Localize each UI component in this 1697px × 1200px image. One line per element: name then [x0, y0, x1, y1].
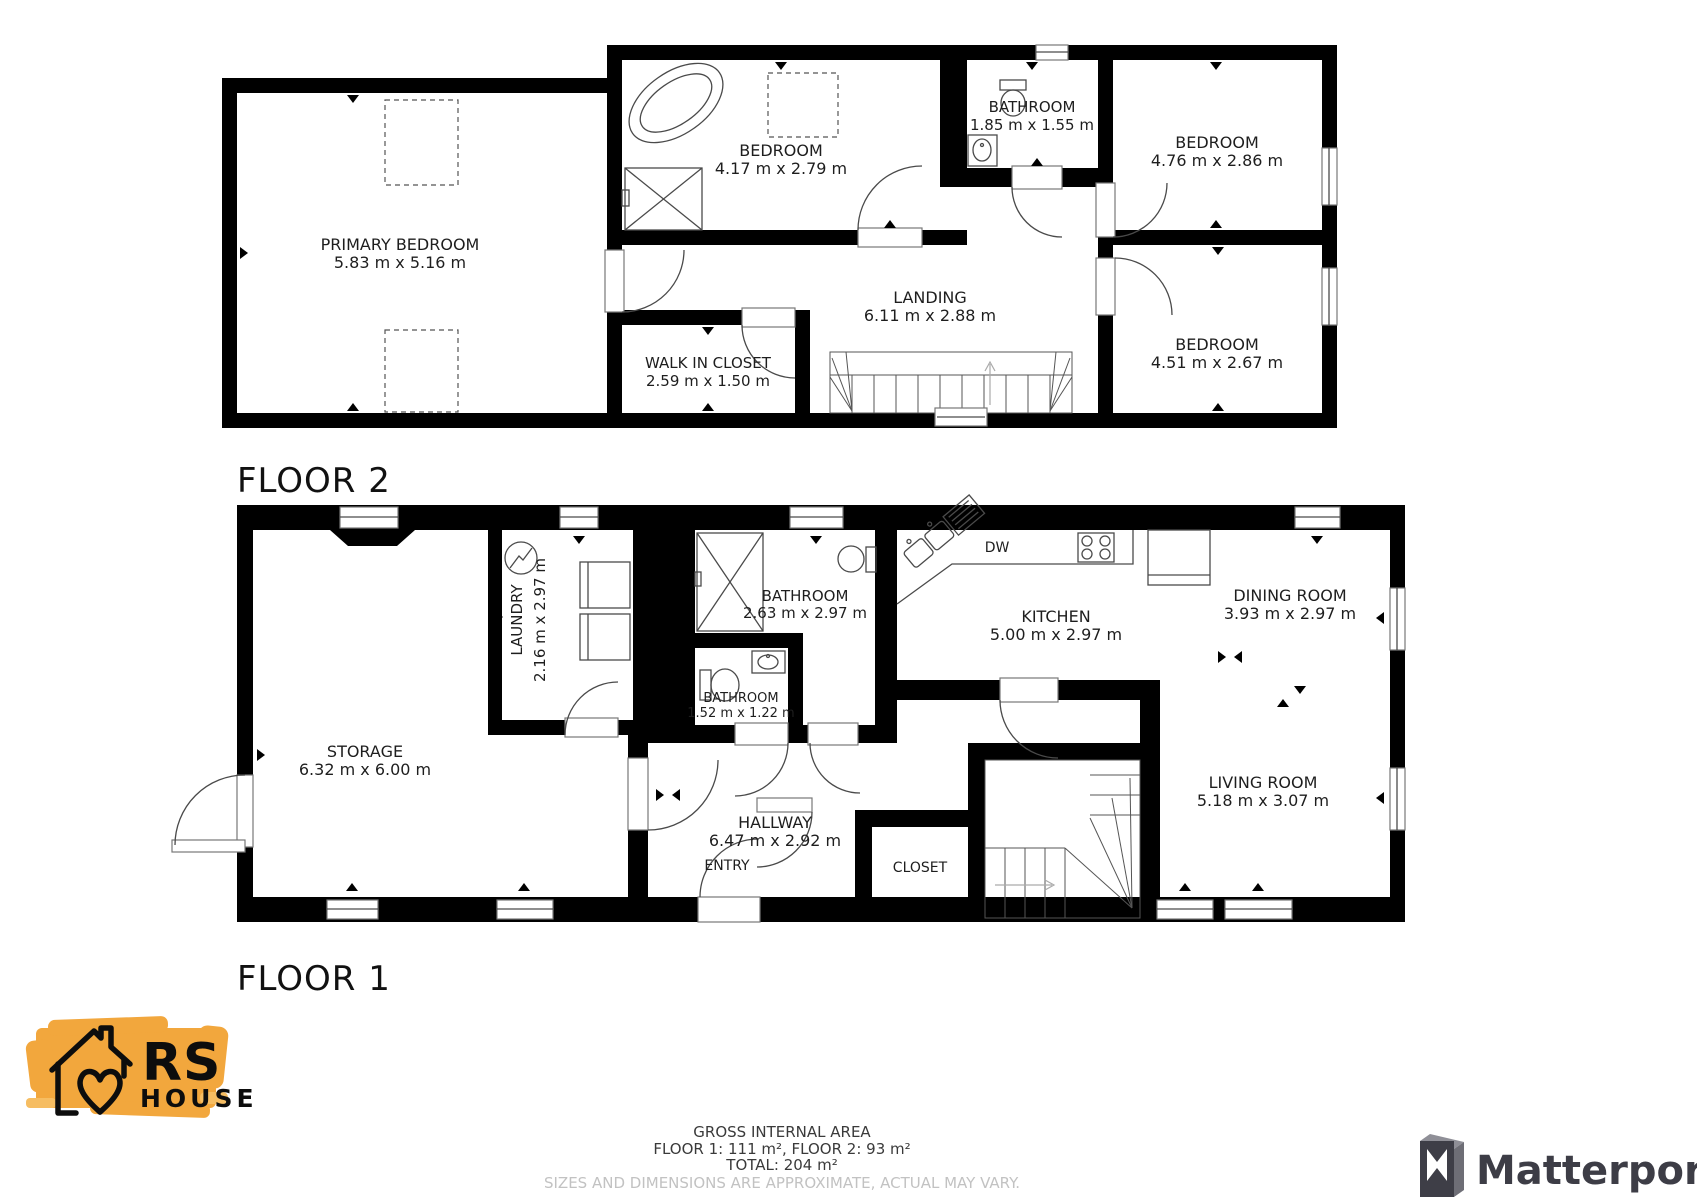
room-dims-primary-bedroom: 5.83 m x 5.16 m	[334, 253, 466, 272]
footer-gross-area: GROSS INTERNAL AREA	[693, 1123, 871, 1141]
floor1-title: FLOOR 1	[237, 959, 391, 999]
dishwasher-label: DW	[985, 540, 1010, 556]
room-dims-living-room: 5.18 m x 3.07 m	[1197, 791, 1329, 810]
room-label-hallway: HALLWAY	[738, 813, 812, 832]
room-label-living-room: LIVING ROOM	[1209, 773, 1318, 792]
kitchen-sink-icon	[899, 491, 985, 570]
room-label-closet: CLOSET	[893, 860, 948, 876]
room-label-primary-bedroom: PRIMARY BEDROOM	[321, 235, 480, 254]
door-arc	[1113, 183, 1167, 237]
floorplan-page: PRIMARY BEDROOM 5.83 m x 5.16 m BEDROOM …	[0, 0, 1697, 1200]
room-dims-landing: 6.11 m x 2.88 m	[864, 306, 996, 325]
room-dims-walk-in-closet: 2.59 m x 1.50 m	[646, 372, 770, 390]
fridge-icon	[1148, 530, 1210, 585]
room-label-walk-in-closet: WALK IN CLOSET	[645, 354, 772, 372]
room-label-bathroom-263: BATHROOM	[762, 587, 849, 605]
sink-icon	[752, 651, 785, 673]
room-label-laundry: LAUNDRY	[508, 583, 526, 655]
dryer-icon	[580, 614, 630, 660]
room-dims-bedroom-476: 4.76 m x 2.86 m	[1151, 151, 1283, 170]
room-label-landing: LANDING	[893, 288, 967, 307]
room-label-bedroom-476: BEDROOM	[1175, 133, 1259, 152]
floorplan-drawing: PRIMARY BEDROOM 5.83 m x 5.16 m BEDROOM …	[0, 0, 1697, 1200]
room-label-kitchen: KITCHEN	[1021, 607, 1090, 626]
room-label-entry: ENTRY	[704, 858, 750, 874]
matterport-m-icon	[1420, 1134, 1464, 1197]
room-label-bathroom-185: BATHROOM	[989, 98, 1076, 116]
room-dims-bedroom-417: 4.17 m x 2.79 m	[715, 159, 847, 178]
shower-icon	[622, 168, 702, 230]
floor2-plan: PRIMARY BEDROOM 5.83 m x 5.16 m BEDROOM …	[222, 45, 1337, 501]
matterport-wordmark: Matterport	[1476, 1148, 1697, 1194]
toilet-icon	[838, 546, 876, 572]
rs-house-logo: RS HOUSE	[25, 1016, 258, 1118]
room-label-bedroom-417: BEDROOM	[739, 141, 823, 160]
footer-total-area: TOTAL: 204 m²	[725, 1156, 837, 1174]
washer-icon	[580, 562, 630, 608]
room-dims-bedroom-451: 4.51 m x 2.67 m	[1151, 353, 1283, 372]
room-label-bedroom-451: BEDROOM	[1175, 335, 1259, 354]
room-dims-hallway: 6.47 m x 2.92 m	[709, 831, 841, 850]
room-label-bathroom-152: BATHROOM	[703, 691, 778, 706]
door-arc	[810, 743, 860, 793]
sink-icon	[968, 135, 997, 166]
floor1-walls	[237, 505, 1405, 922]
room-dims-bathroom-185: 1.85 m x 1.55 m	[970, 116, 1094, 134]
room-label-storage: STORAGE	[327, 742, 403, 761]
stairs-floor1	[985, 760, 1140, 918]
room-dims-kitchen: 5.00 m x 2.97 m	[990, 625, 1122, 644]
floor1-labels: STORAGE 6.32 m x 6.00 m LAUNDRY 2.16 m x…	[299, 540, 1356, 876]
rs-logo-subtext: HOUSE	[140, 1084, 258, 1113]
floor2-title: FLOOR 2	[237, 461, 391, 501]
door-arc	[622, 250, 684, 312]
room-dims-laundry: 2.16 m x 2.97 m	[531, 558, 549, 682]
bathtub-icon	[615, 47, 737, 159]
footer-disclaimer: SIZES AND DIMENSIONS ARE APPROXIMATE, AC…	[544, 1174, 1020, 1192]
door-arc	[735, 743, 788, 796]
room-dims-bathroom-263: 2.63 m x 2.97 m	[743, 604, 867, 622]
footer-area-summary: GROSS INTERNAL AREA FLOOR 1: 111 m², FLO…	[544, 1123, 1020, 1192]
room-label-dining-room: DINING ROOM	[1233, 586, 1346, 605]
room-dims-storage: 6.32 m x 6.00 m	[299, 760, 431, 779]
kitchen-counter	[897, 530, 1133, 604]
room-dims-dining-room: 3.93 m x 2.97 m	[1224, 604, 1356, 623]
room-dims-bathroom-152: 1.52 m x 1.22 m	[687, 706, 794, 721]
door-arc	[1012, 187, 1062, 237]
door-arc	[1115, 258, 1172, 315]
stove-icon	[1078, 533, 1114, 562]
matterport-logo: Matterport	[1420, 1134, 1697, 1197]
floor1-plan: STORAGE 6.32 m x 6.00 m LAUNDRY 2.16 m x…	[172, 491, 1405, 999]
door-arc	[175, 775, 245, 845]
